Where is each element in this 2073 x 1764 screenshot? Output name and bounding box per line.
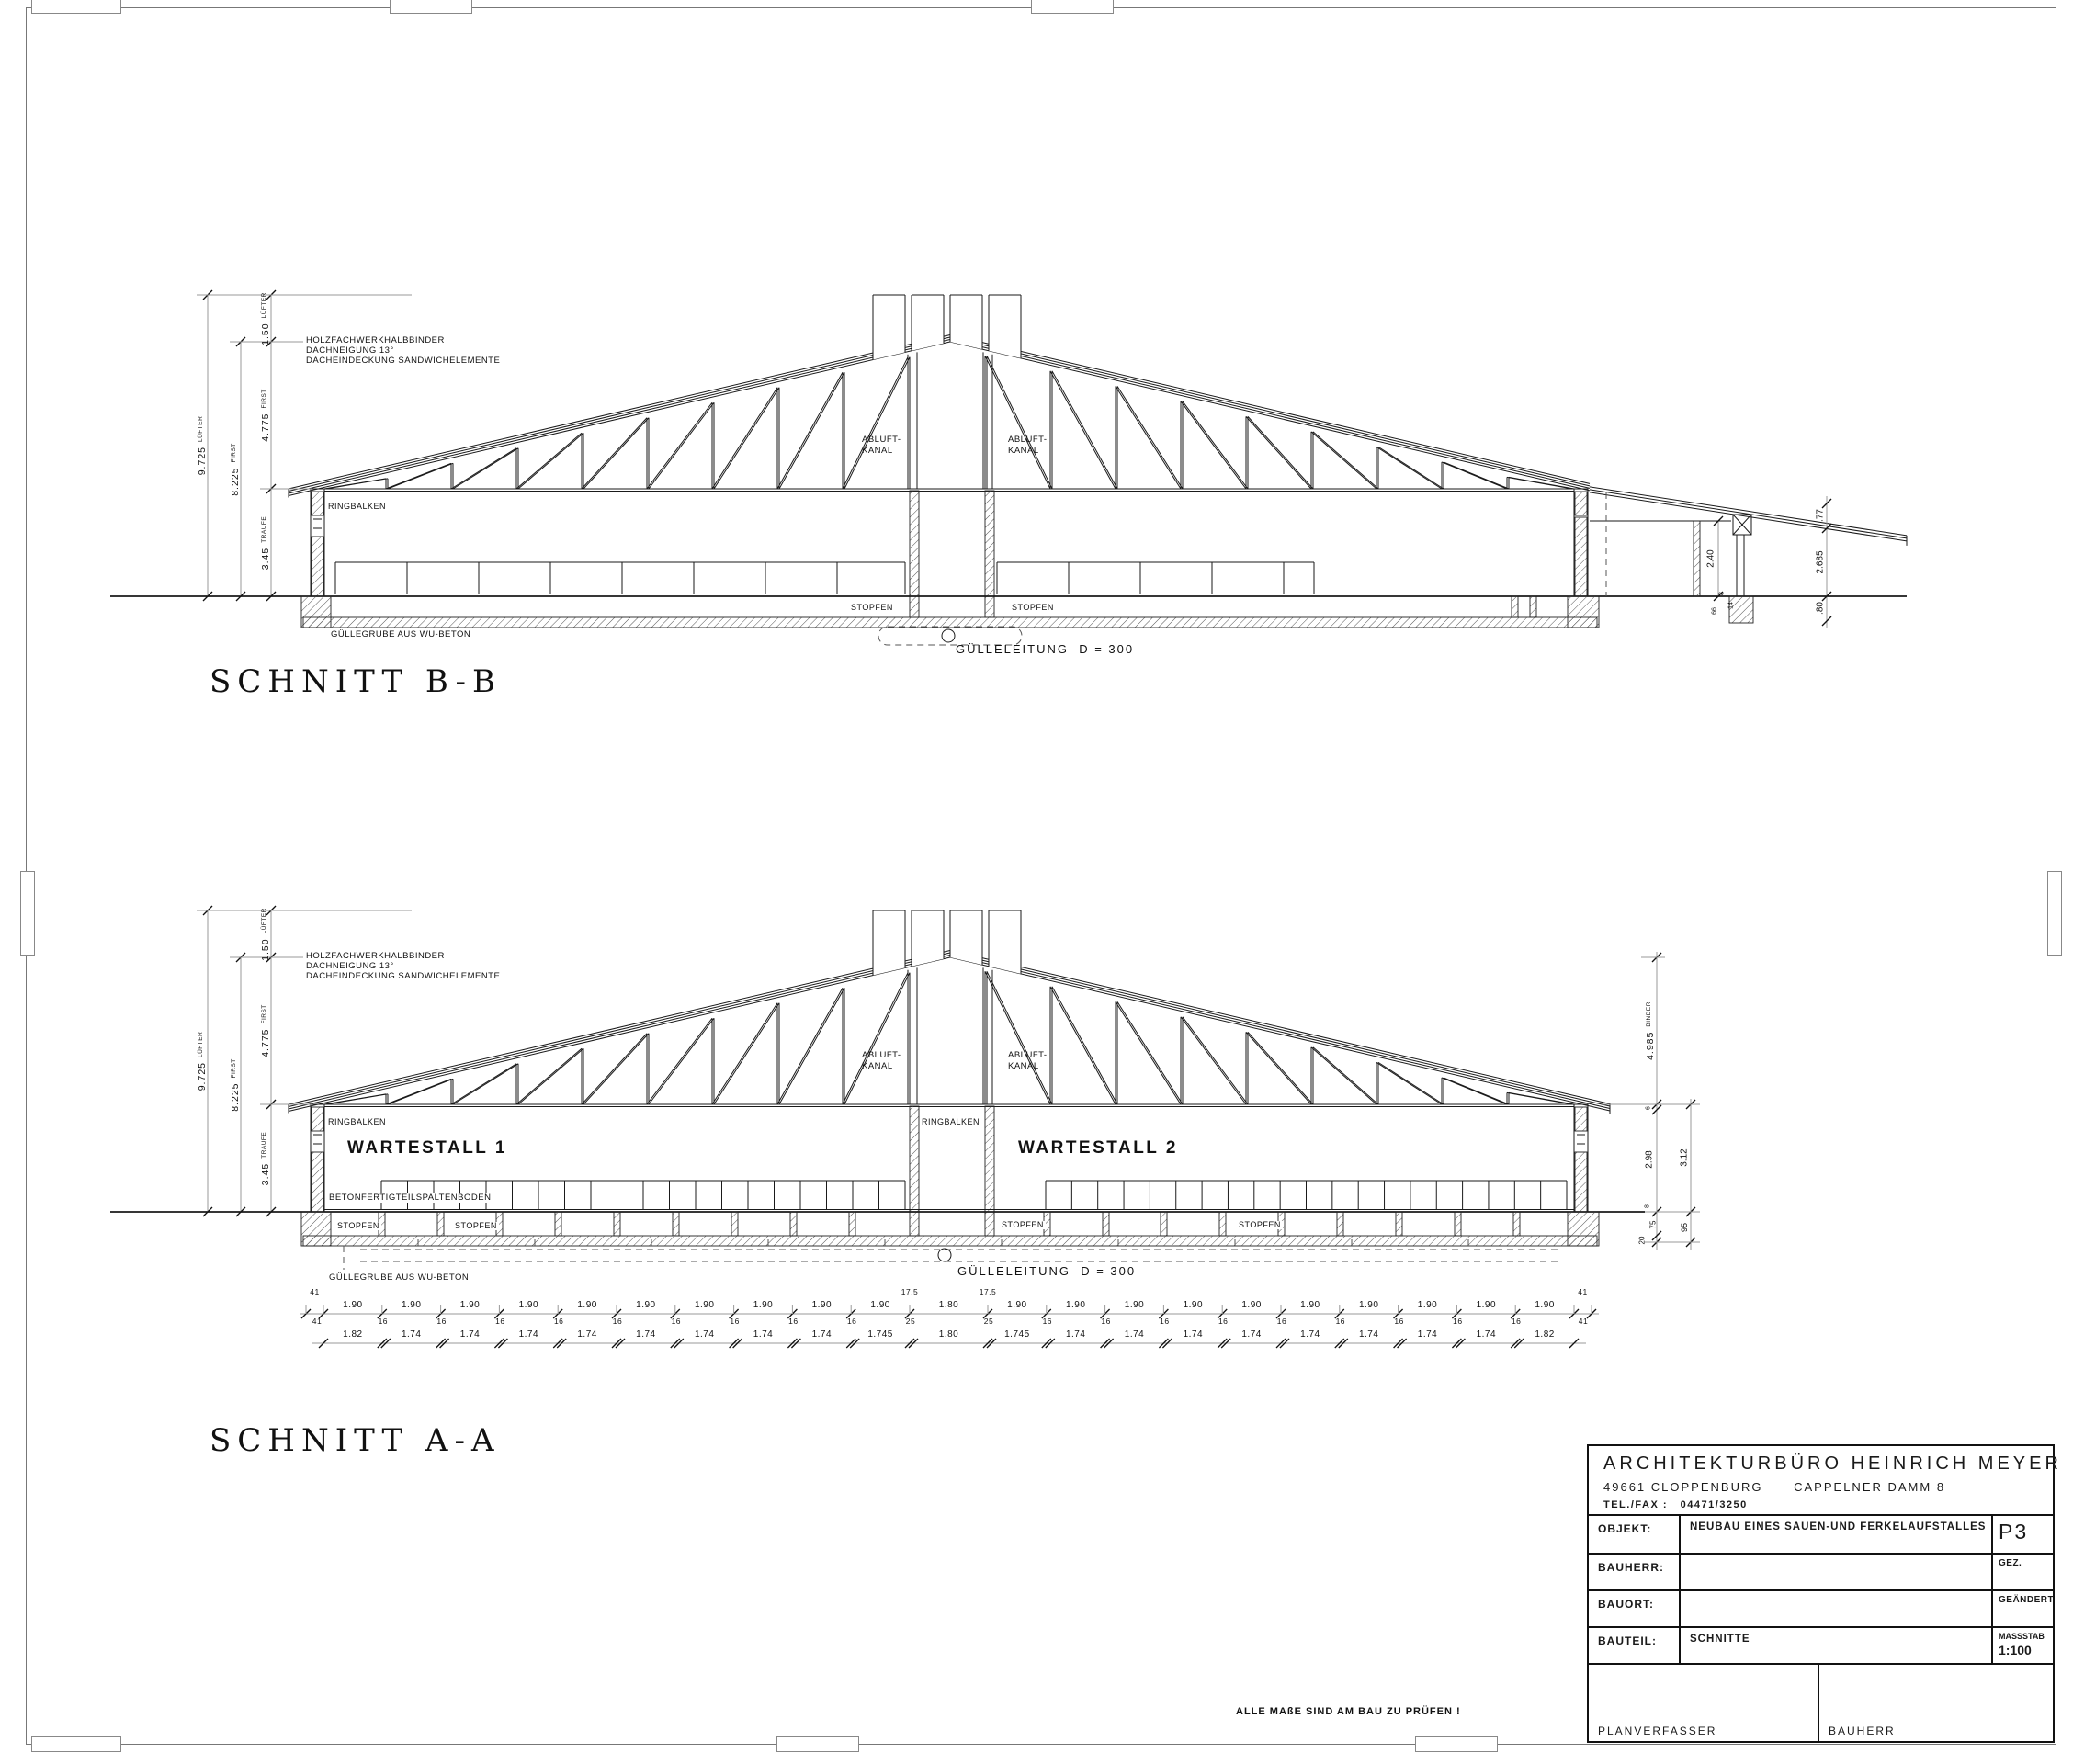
chain-wall-label: 25 — [984, 1317, 993, 1326]
roof-note-line3: DACHEINDECKUNG SANDWICHELEMENTE — [306, 356, 500, 366]
chain-bottom-value: 1.74 — [519, 1330, 538, 1340]
abluft-label: KANAL — [862, 1062, 893, 1071]
chain-bottom-value: 1.74 — [753, 1330, 773, 1340]
abluft-label: ABLUFT- — [1008, 1051, 1048, 1060]
chain-top-value: 1.90 — [1241, 1301, 1261, 1311]
chain-top-value: 1.90 — [695, 1301, 714, 1311]
chain-top-value: 1.90 — [1066, 1301, 1085, 1311]
chain-bottom-value: 1.74 — [577, 1330, 596, 1340]
stopfen-label: STOPFEN — [335, 1222, 381, 1230]
dim-first-unit: FIRST — [261, 389, 267, 408]
bauort-label: BAUORT: — [1589, 1591, 1681, 1626]
planverfasser-cell: PLANVERFASSER — [1589, 1665, 1819, 1743]
chain-top-value: 1.90 — [1007, 1301, 1026, 1311]
dim-luefter-value: 1.50 — [260, 938, 271, 960]
chain-wall-label: 16 — [1336, 1317, 1345, 1326]
chain-bottom-value: 1.82 — [343, 1330, 362, 1340]
chain-wall-label: 16 — [1453, 1317, 1462, 1326]
dim-traufe: 3.45TRAUFE — [260, 1131, 271, 1184]
gez-label: GEZ. — [1991, 1555, 2053, 1589]
chain-wall-label: 41 — [1579, 1317, 1588, 1326]
abluft-label: ABLUFT- — [862, 435, 901, 445]
row-objekt: OBJEKT: NEUBAU EINES SAUEN-UND FERKELAUF… — [1589, 1516, 2053, 1555]
dim-total-luefter-value: 9.725 — [197, 447, 208, 475]
chain-top-value: 41 — [1578, 1288, 1587, 1296]
geaendert-label: GEÄNDERT — [1991, 1591, 2053, 1626]
chain-top-value: 1.90 — [870, 1301, 889, 1311]
fold-mark — [1415, 1736, 1498, 1752]
fold-mark — [31, 1736, 121, 1752]
abluft-label: KANAL — [862, 447, 893, 456]
chain-wall-label: 25 — [906, 1317, 915, 1326]
ringbalken-label: RINGBALKEN — [328, 1118, 386, 1126]
dim-240: 2.40 — [1706, 549, 1716, 567]
bauherr-label: BAUHERR: — [1589, 1555, 1681, 1589]
chain-bottom-value: 1.745 — [867, 1330, 893, 1340]
chain-top-value: 1.80 — [939, 1301, 958, 1311]
chain-bottom-value: 1.745 — [1004, 1330, 1030, 1340]
roof-note-line1: HOLZFACHWERKHALBBINDER — [306, 952, 445, 961]
chain-wall-label: 16 — [672, 1317, 681, 1326]
chain-bottom-value: 1.74 — [1300, 1330, 1320, 1340]
chain-top-value: 1.90 — [636, 1301, 655, 1311]
chain-wall-label: 16 — [1101, 1317, 1110, 1326]
dim-traufe-unit: TRAUFE — [261, 515, 267, 542]
chain-top-value: 1.90 — [460, 1301, 480, 1311]
chain-bottom-value: 1.74 — [460, 1330, 480, 1340]
stopfen-label: STOPFEN — [851, 604, 893, 612]
chain-wall-label: 16 — [788, 1317, 798, 1326]
fold-mark — [390, 0, 472, 14]
chain-top-value: 1.90 — [1184, 1301, 1203, 1311]
dim-luefter-unit: LÜFTER — [261, 908, 267, 933]
chain-bottom-value: 1.74 — [1125, 1330, 1144, 1340]
chain-top-value: 1.90 — [1477, 1301, 1496, 1311]
chain-wall-label: 16 — [1277, 1317, 1286, 1326]
chain-bottom-value: 1.74 — [1359, 1330, 1378, 1340]
chain-top-value: 1.90 — [519, 1301, 538, 1311]
dim-6: 6 — [1646, 1106, 1652, 1110]
bauteil-value: SCHNITTE — [1681, 1628, 1991, 1663]
title-block: ARCHITEKTURBÜRO HEINRICH MEYER 49661 CLO… — [1587, 1444, 2055, 1743]
chain-bottom-value: 1.74 — [1184, 1330, 1203, 1340]
dim-luefter-value: 1.50 — [260, 322, 271, 345]
chain-bottom-value: 1.74 — [1418, 1330, 1437, 1340]
fold-mark — [1031, 0, 1114, 14]
dim-first-unit: FIRST — [261, 1004, 267, 1023]
chain-top-value: 1.90 — [402, 1301, 421, 1311]
dim-binder-value: 4.985 — [1645, 1032, 1656, 1060]
roof-note-line3: DACHEINDECKUNG SANDWICHELEMENTE — [306, 972, 500, 981]
fold-mark — [776, 1736, 859, 1752]
chain-wall-label: 16 — [495, 1317, 504, 1326]
stopfen-label: STOPFEN — [1012, 604, 1054, 612]
chain-wall-label: 16 — [554, 1317, 563, 1326]
chain-wall-label: 16 — [847, 1317, 856, 1326]
ringbalken-label: RINGBALKEN — [922, 1118, 980, 1126]
row-bauherr: BAUHERR: GEZ. — [1589, 1555, 2053, 1591]
chain-wall-label: 16 — [1160, 1317, 1169, 1326]
chain-top-value: 1.90 — [343, 1301, 362, 1311]
fold-mark — [20, 871, 35, 955]
guellegrube-label: GÜLLEGRUBE AUS WU-BETON — [327, 1273, 470, 1283]
section-b-title: SCHNITT B-B — [210, 663, 502, 700]
dim-luefter-unit: LÜFTER — [261, 292, 267, 318]
dim-total-luefter: 9.725LÜFTER — [197, 1032, 208, 1091]
firm-phone: TEL./FAX : 04471/3250 — [1603, 1499, 2053, 1510]
chain-top-value: 1.90 — [753, 1301, 773, 1311]
chain-top-value: 1.90 — [1418, 1301, 1437, 1311]
chain-wall-label: 16 — [1218, 1317, 1228, 1326]
stopfen-label: STOPFEN — [1000, 1221, 1046, 1229]
dim-total-first-unit: FIRST — [231, 443, 237, 462]
dim-traufe: 3.45TRAUFE — [260, 515, 271, 569]
dim-8: 8 — [1719, 592, 1726, 595]
dim-total-first-unit: FIRST — [231, 1058, 237, 1078]
dim-14: 14 — [1728, 602, 1735, 609]
chain-top-value: 1.90 — [577, 1301, 596, 1311]
dim-total-first: 8.225FIRST — [230, 1058, 241, 1112]
chain-wall-label: 16 — [1043, 1317, 1052, 1326]
roof-note-line2: DACHNEIGUNG 13° — [306, 346, 394, 356]
row-bauort: BAUORT: GEÄNDERT — [1589, 1591, 2053, 1628]
chain-bottom-value: 1.74 — [1241, 1330, 1261, 1340]
dim-binder: 4.985BINDER — [1645, 1001, 1656, 1060]
chain-bottom-value: 1.74 — [695, 1330, 714, 1340]
chain-wall-label: 16 — [379, 1317, 388, 1326]
chain-bottom-value: 1.74 — [636, 1330, 655, 1340]
dim-luefter: 1.50LÜFTER — [260, 292, 271, 345]
objekt-value: NEUBAU EINES SAUEN-UND FERKELAUFSTALLES — [1681, 1516, 1991, 1553]
chain-top-value: 1.90 — [812, 1301, 832, 1311]
planverfasser-label: PLANVERFASSER — [1598, 1724, 1716, 1737]
dim-binder-unit: BINDER — [1646, 1001, 1652, 1027]
bauort-value — [1681, 1591, 1991, 1626]
chain-bottom-value: 1.74 — [1066, 1330, 1085, 1340]
wartestall2-label: WARTESTALL 2 — [1018, 1139, 1178, 1158]
dim-20: 20 — [1638, 1237, 1647, 1245]
firm-address: 49661 CLOPPENBURG CAPPELNER DAMM 8 — [1603, 1480, 2053, 1494]
chain-top-value: 41 — [310, 1288, 319, 1296]
dim-75: 75 — [1649, 1221, 1658, 1229]
chain-wall-label: 16 — [1512, 1317, 1521, 1326]
massstab-label: MASSSTAB — [1999, 1632, 2053, 1641]
dim-77: .77 — [1816, 509, 1826, 522]
dim-total-first-value: 8.225 — [230, 1082, 241, 1111]
title-block-header: ARCHITEKTURBÜRO HEINRICH MEYER 49661 CLO… — [1589, 1446, 2053, 1516]
dim-95: 95 — [1680, 1223, 1689, 1232]
chain-bottom-value: 1.82 — [1535, 1330, 1554, 1340]
chain-175-label: 17.5 — [901, 1288, 919, 1296]
chain-bottom-value: 1.74 — [402, 1330, 421, 1340]
dim-total-luefter-unit: LÜFTER — [198, 1032, 204, 1057]
guelleleitung-label: GÜLLELEITUNG D = 300 — [956, 643, 1134, 656]
dim-total-first: 8.225FIRST — [230, 443, 241, 496]
chain-wall-label: 16 — [613, 1317, 622, 1326]
dim-312: 3.12 — [1680, 1148, 1690, 1166]
dim-66: 66 — [1712, 607, 1718, 615]
dim-traufe-value: 3.45 — [260, 1162, 271, 1184]
chain-175-label: 17.5 — [980, 1288, 997, 1296]
objekt-label: OBJEKT: — [1589, 1516, 1681, 1553]
dim-luefter: 1.50LÜFTER — [260, 908, 271, 961]
dim-8a: 8 — [1645, 1204, 1651, 1208]
bauherr-bottom-label: BAUHERR — [1829, 1724, 1896, 1737]
bauherr-signature-cell: BAUHERR — [1819, 1665, 2053, 1743]
massstab-cell: MASSSTAB 1:100 — [1991, 1628, 2053, 1663]
dim-80: .80 — [1816, 602, 1826, 615]
guelleleitung-label: GÜLLELEITUNG D = 300 — [956, 1265, 1138, 1278]
dim-total-luefter-unit: LÜFTER — [198, 416, 204, 442]
dim-2685: 2.685 — [1816, 550, 1826, 573]
chain-top-value: 1.90 — [1535, 1301, 1554, 1311]
chain-wall-label: 16 — [436, 1317, 446, 1326]
wartestall1-label: WARTESTALL 1 — [347, 1139, 507, 1158]
chain-bottom-value: 1.74 — [1477, 1330, 1496, 1340]
dim-first-value: 4.775 — [260, 413, 271, 442]
stopfen-label: STOPFEN — [453, 1222, 499, 1230]
abluft-label: ABLUFT- — [1008, 435, 1048, 445]
signature-row: PLANVERFASSER BAUHERR — [1589, 1665, 2053, 1743]
guellegrube-label: GÜLLEGRUBE AUS WU-BETON — [331, 630, 470, 639]
spaltenboden-label: BETONFERTIGTEILSPALTENBODEN — [327, 1193, 493, 1203]
dim-first: 4.775FIRST — [260, 389, 271, 442]
row-bauteil: BAUTEIL: SCHNITTE MASSSTAB 1:100 — [1589, 1628, 2053, 1665]
abluft-label: ABLUFT- — [862, 1051, 901, 1060]
dim-total-first-value: 8.225 — [230, 467, 241, 495]
chain-wall-label: 41 — [312, 1317, 322, 1326]
dim-total-luefter-value: 9.725 — [197, 1062, 208, 1091]
section-a-title: SCHNITT A-A — [210, 1422, 501, 1459]
dim-298: 2.98 — [1645, 1150, 1655, 1168]
stopfen-label: STOPFEN — [1237, 1221, 1283, 1229]
bauteil-label: BAUTEIL: — [1589, 1628, 1681, 1663]
roof-note-line2: DACHNEIGUNG 13° — [306, 962, 394, 971]
bauherr-value — [1681, 1555, 1991, 1589]
chain-top-value: 1.90 — [1300, 1301, 1320, 1311]
massstab-value: 1:100 — [1999, 1643, 2053, 1657]
dim-first: 4.775FIRST — [260, 1004, 271, 1057]
plan-number: P3 — [1991, 1516, 2053, 1553]
chain-bottom-value: 1.80 — [939, 1330, 958, 1340]
chain-wall-label: 16 — [730, 1317, 739, 1326]
fold-mark — [2047, 871, 2062, 955]
dim-traufe-value: 3.45 — [260, 547, 271, 569]
dim-traufe-unit: TRAUFE — [261, 1131, 267, 1158]
abluft-label: KANAL — [1008, 447, 1039, 456]
sheet-note: ALLE MAßE SIND AM BAU ZU PRÜFEN ! — [1236, 1707, 1461, 1718]
dim-total-luefter: 9.725LÜFTER — [197, 416, 208, 476]
dim-first-value: 4.775 — [260, 1029, 271, 1057]
chain-top-value: 1.90 — [1359, 1301, 1378, 1311]
chain-bottom-value: 1.74 — [812, 1330, 832, 1340]
firm-name: ARCHITEKTURBÜRO HEINRICH MEYER — [1603, 1453, 2053, 1475]
ringbalken-label: RINGBALKEN — [328, 503, 386, 511]
chain-top-value: 1.90 — [1125, 1301, 1144, 1311]
abluft-label: KANAL — [1008, 1062, 1039, 1071]
drawing-sheet: 9.725LÜFTER8.225FIRST1.50LÜFTER4.775FIRS… — [0, 0, 2073, 1764]
fold-mark — [31, 0, 121, 14]
roof-note-line1: HOLZFACHWERKHALBBINDER — [306, 336, 445, 345]
chain-wall-label: 16 — [1394, 1317, 1403, 1326]
